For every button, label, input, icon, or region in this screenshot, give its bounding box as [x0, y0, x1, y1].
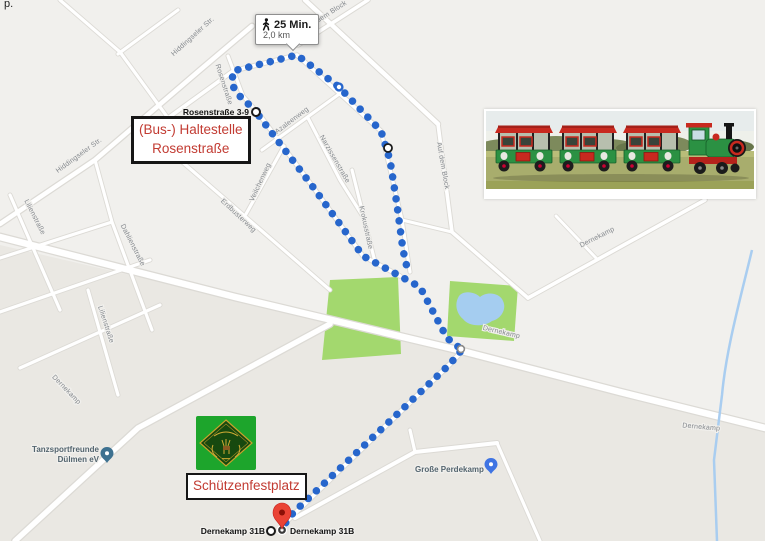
poi-label-tanzsport-line2: Dülmen eV: [58, 455, 100, 464]
poi-label-tanzsport-line1: Tanzsportfreunde: [32, 445, 100, 454]
festplatz-callout: Schützenfestplatz: [186, 473, 307, 500]
route-distance: 2,0 km: [263, 31, 311, 41]
bus-stop-callout: (Bus-) Haltestelle Rosenstraße: [131, 116, 251, 164]
destination-address-marker[interactable]: [267, 527, 275, 535]
festplatz-callout-label: Schützenfestplatz: [193, 478, 300, 493]
map-canvas[interactable]: Hiddingseler Str. Hiddingseler Str. Auf …: [0, 0, 765, 541]
origin-marker[interactable]: [252, 108, 260, 116]
bus-stop-callout-line1: (Bus-) Haltestelle: [139, 121, 243, 140]
bus-stop-callout-line2: Rosenstraße: [139, 140, 243, 159]
stray-cropped-text: p.: [4, 0, 13, 10]
club-emblem-image: [196, 416, 256, 470]
poi-label-perdekamp: Große Perdekamp: [415, 465, 484, 474]
route-duration: 25 Min.: [274, 19, 311, 31]
route-summary-bubble[interactable]: 25 Min. 2,0 km: [255, 14, 319, 45]
address-point-marker: [384, 144, 392, 152]
map-screenshot: Hiddingseler Str. Hiddingseler Str. Auf …: [0, 0, 765, 541]
train-photo: [484, 109, 756, 199]
destination-address-label: Dernekamp 31B: [201, 526, 265, 536]
train-photo-image: [486, 111, 754, 189]
destination-address-label-2: Dernekamp 31B: [290, 526, 354, 536]
crossing-marker: [458, 346, 465, 353]
route-waypoint-dot: [336, 84, 343, 91]
